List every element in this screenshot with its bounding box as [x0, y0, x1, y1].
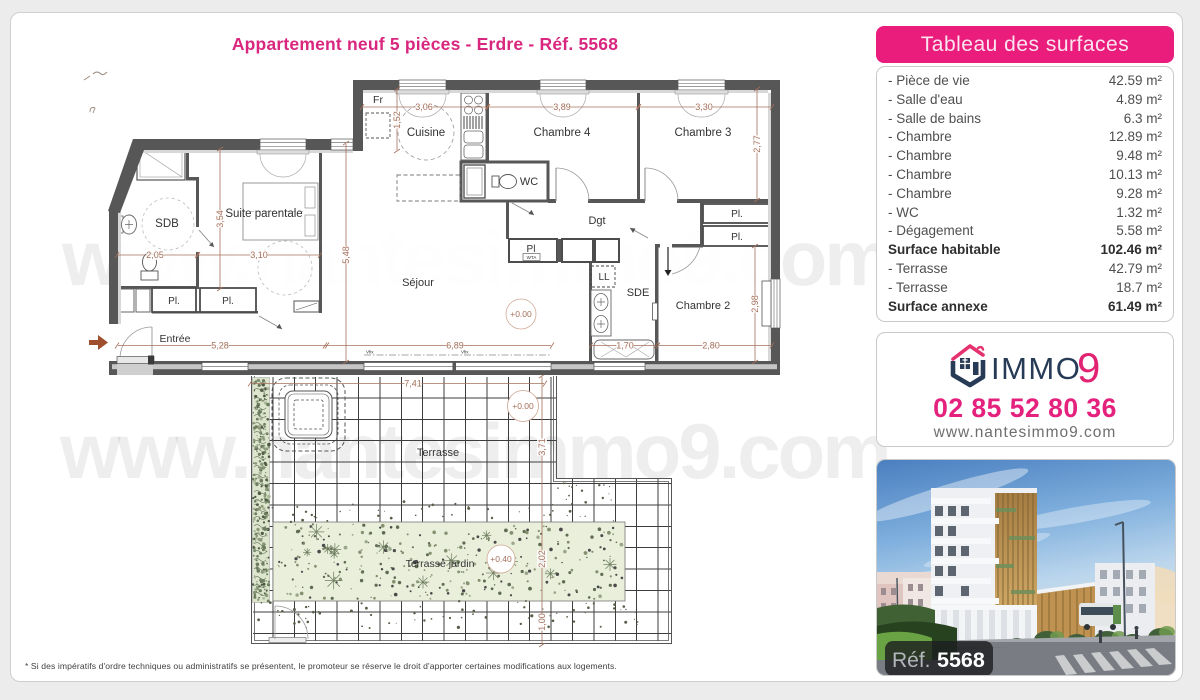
svg-text:3,30: 3,30: [695, 102, 713, 112]
svg-text:Cuisine: Cuisine: [407, 127, 445, 139]
svg-text:Vfix: Vfix: [366, 350, 374, 355]
svg-text:www.nantesimmo9.com: www.nantesimmo9.com: [933, 424, 1117, 441]
svg-text:Dgt: Dgt: [588, 215, 605, 227]
svg-text:Terrasse jardin: Terrasse jardin: [406, 558, 475, 570]
svg-text:5,48: 5,48: [341, 246, 351, 264]
svg-text:WTA: WTA: [527, 255, 537, 260]
svg-text:9: 9: [1077, 344, 1100, 391]
svg-text:SDB: SDB: [155, 218, 179, 230]
svg-text:3,06: 3,06: [415, 102, 433, 112]
svg-text:3,10: 3,10: [250, 250, 268, 260]
svg-text:Fr: Fr: [373, 94, 383, 106]
svg-text:5,28: 5,28: [211, 341, 229, 351]
svg-text:Pl.: Pl.: [731, 232, 743, 243]
svg-text:2,77: 2,77: [752, 135, 762, 153]
svg-text:WC: WC: [520, 176, 538, 188]
svg-text:Chambre 2: Chambre 2: [676, 300, 730, 312]
svg-text:Terrasse: Terrasse: [417, 447, 459, 459]
svg-text:02 85 52 80 36: 02 85 52 80 36: [933, 393, 1117, 423]
svg-text:2,05: 2,05: [146, 250, 164, 260]
svg-text:3,54: 3,54: [215, 210, 225, 228]
svg-text:5568: 5568: [937, 648, 985, 672]
svg-text:2,98: 2,98: [750, 295, 760, 313]
svg-text:6,89: 6,89: [446, 341, 464, 351]
svg-text:+0.40: +0.40: [490, 554, 512, 564]
svg-text:2,80: 2,80: [702, 341, 720, 351]
svg-text:Pl.: Pl.: [731, 209, 743, 220]
svg-text:Chambre 3: Chambre 3: [675, 127, 732, 139]
svg-text:www.nantesimmo9.com: www.nantesimmo9.com: [59, 407, 889, 495]
svg-text:Pl.: Pl.: [168, 296, 180, 307]
svg-text:3,71: 3,71: [537, 438, 547, 456]
svg-text:7,41: 7,41: [404, 379, 422, 389]
svg-text:LL: LL: [598, 272, 610, 283]
svg-text:1,70: 1,70: [616, 341, 634, 351]
svg-text:1,52: 1,52: [392, 111, 402, 129]
svg-text:+0.00: +0.00: [510, 309, 532, 319]
svg-text:3,89: 3,89: [553, 102, 571, 112]
svg-text:Séjour: Séjour: [402, 277, 434, 289]
svg-text:Chambre 4: Chambre 4: [534, 127, 591, 139]
svg-text:1,00: 1,00: [537, 613, 547, 631]
svg-text:SDE: SDE: [627, 287, 650, 299]
svg-text:Réf.: Réf.: [892, 649, 931, 672]
svg-text:IMMO: IMMO: [991, 351, 1081, 386]
svg-text:Entrée: Entrée: [160, 333, 191, 345]
svg-text:Suite parentale: Suite parentale: [225, 208, 302, 220]
svg-text:2,02: 2,02: [537, 550, 547, 568]
svg-text:Pl.: Pl.: [222, 296, 234, 307]
svg-text:+0.00: +0.00: [512, 401, 534, 411]
